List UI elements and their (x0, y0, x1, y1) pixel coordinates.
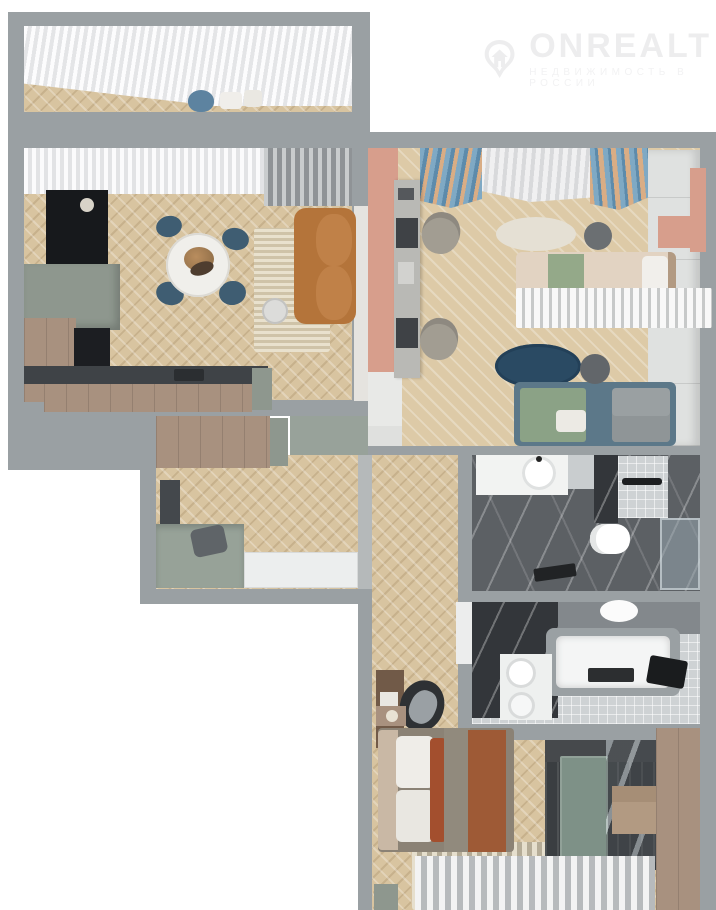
kids-curtain-white (482, 148, 590, 202)
living-curtains-white (24, 148, 264, 194)
desk-monitor (396, 318, 418, 348)
bed-pillow (396, 790, 434, 842)
watermark-brand: ONREALT (529, 29, 712, 63)
wall (140, 588, 372, 604)
shower-bar (622, 478, 662, 485)
side-table (262, 298, 288, 324)
wardrobe-drawers (612, 786, 656, 834)
wall (370, 132, 716, 148)
bath2-toilet (506, 658, 536, 688)
desk-monitor (396, 218, 418, 248)
hall-coat-rack (160, 480, 180, 524)
bedroom-curtains (415, 856, 655, 910)
kids-rug-cream (496, 217, 576, 251)
bath1-faucet (536, 456, 542, 462)
bath2-floor-item (588, 668, 634, 682)
nightstand-lamp (386, 710, 398, 722)
hall-corridor-partition (356, 455, 372, 589)
bath1-mirror (568, 455, 594, 489)
wall (140, 416, 156, 604)
desk-item (398, 188, 414, 200)
kids-bed-2 (514, 382, 676, 446)
wall (8, 12, 370, 26)
living-wall-face (354, 206, 368, 401)
kitchen-sink (174, 369, 204, 381)
watermark-tagline: НЕДВИЖИМОСТЬ В РОССИИ (529, 67, 712, 89)
kids-pouf (584, 222, 612, 250)
wall (8, 112, 370, 148)
bath2-sink (600, 600, 638, 622)
balcony-chair (188, 90, 214, 112)
living-curtains-grey (264, 148, 352, 206)
balcony-pillow (244, 90, 262, 107)
hall-closet (156, 416, 270, 468)
kitchen-countertop (24, 366, 268, 384)
hall-shoe-cabinet (244, 552, 358, 588)
bedroom-bed (378, 728, 514, 852)
bed-pillows-grey (612, 388, 670, 442)
desk-item (398, 262, 414, 284)
floorplan-render: ONREALT НЕДВИЖИМОСТЬ В РОССИИ (0, 0, 716, 910)
bed-blanket (444, 728, 470, 852)
sofa-cushion (316, 214, 352, 266)
room-balcony (24, 26, 352, 112)
bed-pillow (396, 736, 434, 788)
wardrobe-door-sage (560, 756, 608, 868)
balcony-pillow (220, 92, 242, 109)
bed-headboard (378, 730, 398, 850)
kids-curtain-blue2 (590, 148, 648, 210)
wall (700, 455, 716, 910)
bath2-toilet-2 (508, 692, 535, 719)
watermark: ONREALT НЕДВИЖИМОСТЬ В РОССИИ (482, 24, 712, 94)
kids-pouf (580, 354, 610, 384)
wall (8, 405, 148, 470)
kids-cabinet (368, 372, 402, 446)
bath1-accent-wall (594, 455, 618, 523)
onrealt-pin-icon (482, 29, 517, 89)
wall (8, 12, 24, 416)
bedroom-door (456, 602, 472, 664)
kids-room-divider (516, 288, 712, 328)
bed-throw-terracotta (468, 730, 506, 852)
bedroom-window-sill (374, 884, 398, 910)
hall-closet-end (270, 418, 288, 466)
kids-curtain-blue (420, 148, 482, 208)
kids-wardrobe-accent (690, 168, 706, 252)
corridor-floor (372, 455, 458, 600)
bed-pillow (556, 410, 586, 432)
kitchen-cabinet-front (44, 384, 252, 412)
bath1-toilet (590, 524, 630, 554)
sofa-cushion (316, 266, 352, 320)
bath1-shower (618, 456, 668, 518)
bedroom-wood-closet (656, 728, 700, 910)
kitchen-end-panel (252, 368, 272, 410)
bath1-glass-partition (660, 518, 700, 590)
table-lamp (80, 198, 94, 212)
watermark-text: ONREALT НЕДВИЖИМОСТЬ В РОССИИ (529, 29, 712, 89)
